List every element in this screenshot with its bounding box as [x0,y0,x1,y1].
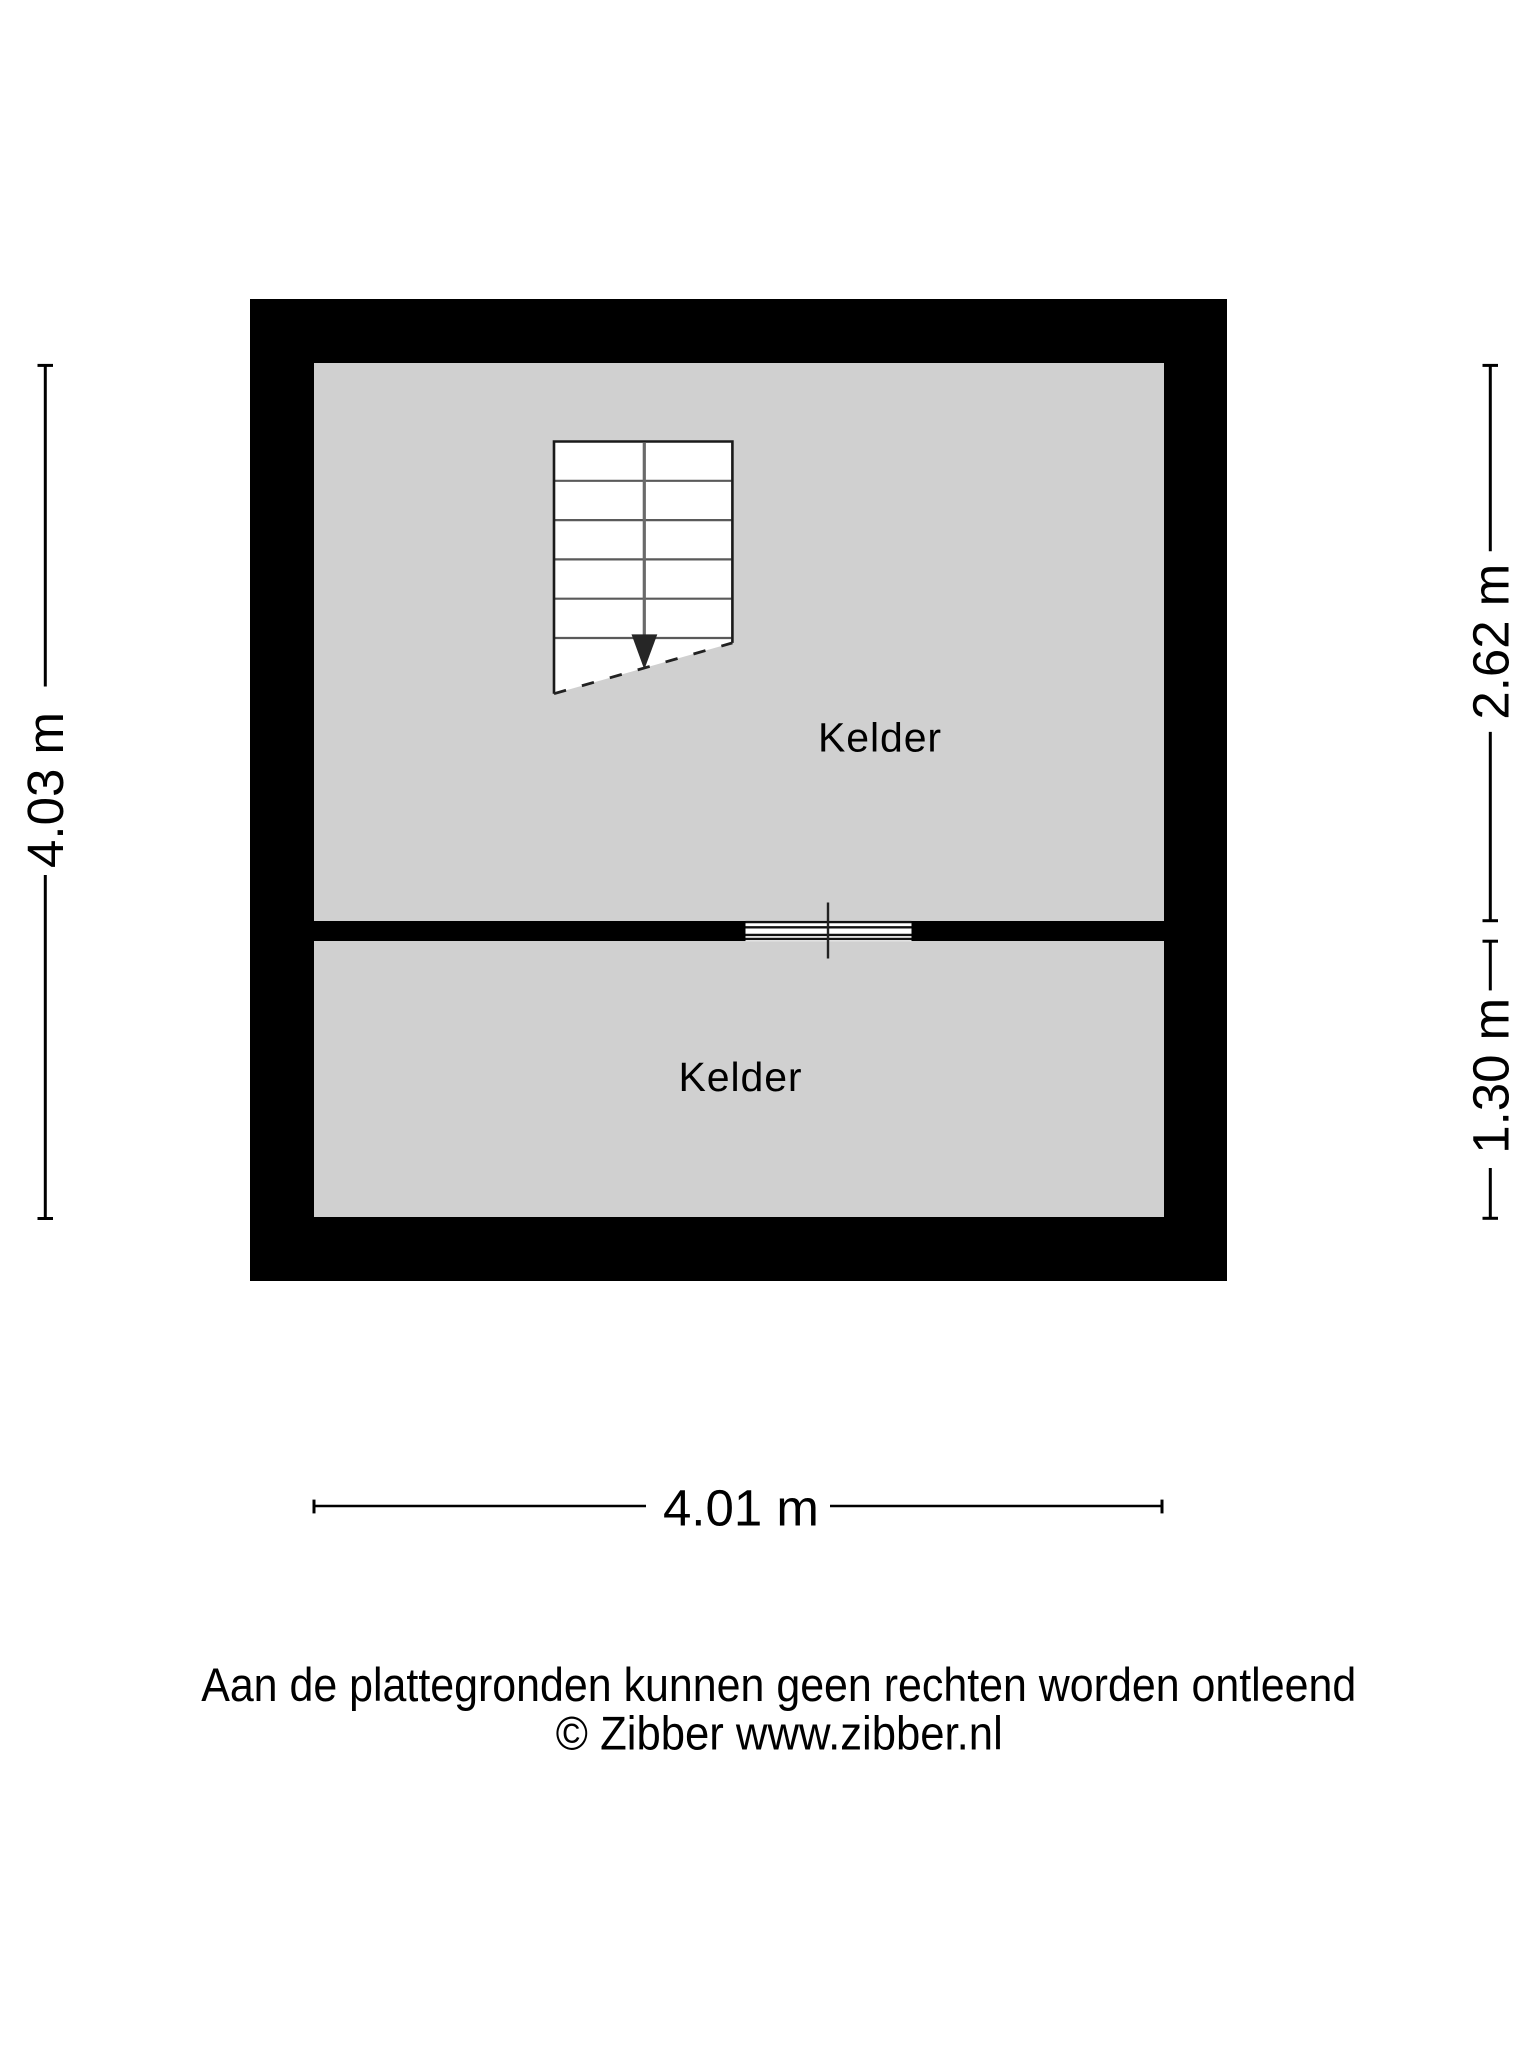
svg-text:1.30 m: 1.30 m [1463,998,1520,1154]
svg-text:Aan de plattegronden kunnen ge: Aan de plattegronden kunnen geen rechten… [201,1658,1356,1711]
svg-text:4.01 m: 4.01 m [663,1480,819,1537]
svg-text:2.62 m: 2.62 m [1463,564,1520,720]
svg-text:© Zibber www.zibber.nl: © Zibber www.zibber.nl [556,1707,1003,1760]
svg-text:Kelder: Kelder [679,1054,803,1100]
svg-text:Kelder: Kelder [818,715,942,761]
svg-text:4.03 m: 4.03 m [17,712,74,868]
